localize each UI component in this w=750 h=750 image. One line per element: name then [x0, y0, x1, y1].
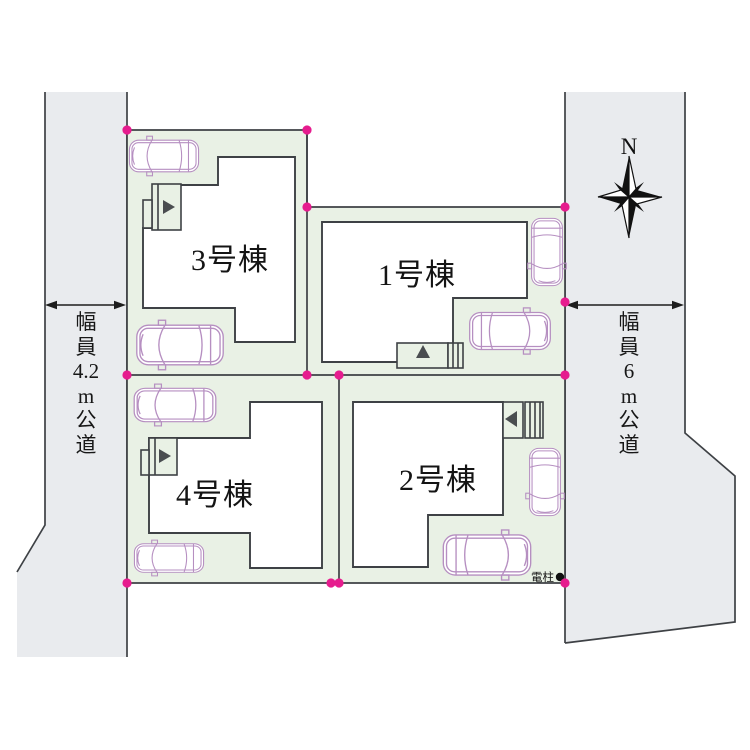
road-right-label-line: 員: [619, 335, 640, 360]
utility-pole-label: 電柱: [531, 569, 554, 585]
car-icon: [129, 136, 198, 176]
road-right-label-line: m: [621, 384, 637, 409]
site-plan: 1号棟 2号棟 3号棟 4号棟 幅 員 4.2 m 公 道 幅 員 6 m 公 …: [0, 0, 750, 750]
road-right-label-line: 6: [624, 359, 635, 384]
road-right-label-line: 道: [619, 433, 640, 458]
road-left-label-line: m: [78, 384, 94, 409]
car-icon: [526, 448, 565, 515]
car-icon: [137, 320, 223, 370]
road-left-width-label: 幅 員 4.2 m 公 道: [64, 310, 108, 457]
compass-north-label: N: [621, 134, 638, 160]
car-icon: [134, 384, 216, 426]
building-1-label: 1号棟: [378, 250, 456, 294]
road-right-label-line: 公: [619, 408, 640, 433]
building-4-label: 4号棟: [176, 470, 254, 514]
road-left-label-line: 4.2: [73, 359, 99, 384]
car-icon: [470, 308, 551, 354]
road-right-label-line: 幅: [619, 310, 640, 335]
car-icon: [134, 540, 203, 576]
road-left-label-line: 員: [76, 335, 97, 360]
car-icon: [528, 218, 567, 285]
road-left-label-line: 幅: [76, 310, 97, 335]
road-left-label-line: 道: [76, 433, 97, 458]
road-right-width-label: 幅 員 6 m 公 道: [607, 310, 651, 457]
car-icon: [443, 530, 530, 580]
building-2-label: 2号棟: [399, 455, 477, 499]
building-3-label: 3号棟: [191, 235, 269, 279]
road-left-label-line: 公: [76, 408, 97, 433]
